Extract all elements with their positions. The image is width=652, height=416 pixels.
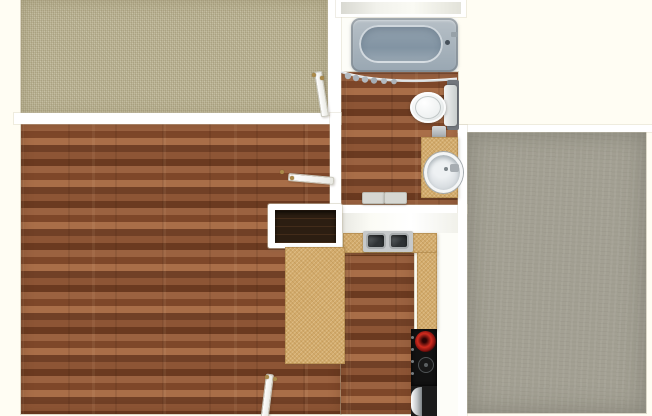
room-bedroom-left-carpet [21, 0, 328, 115]
room-kitchen-floor [341, 252, 414, 414]
toilet-seat-ring [415, 96, 441, 119]
door-hinge-icon [320, 76, 324, 80]
vanity-faucet-handle [444, 167, 448, 171]
kitchen-sink-basin-left [366, 233, 386, 249]
shower-curtain [338, 64, 460, 88]
room-bedroom-right-carpet [467, 132, 646, 413]
bath-mat-right [384, 192, 407, 204]
bathtub-basin [359, 25, 443, 63]
range-knob-3 [411, 360, 414, 363]
entry-hall-floor [341, 213, 458, 233]
door-hinge-icon [280, 170, 284, 174]
door-hinge-icon [273, 377, 277, 381]
wall-bedroom-bathroom [328, 0, 341, 115]
range-knob-2 [411, 348, 414, 351]
bathtub-faucet-icon [451, 32, 458, 37]
range-knob-1 [411, 336, 414, 339]
toilet-bowl [410, 92, 446, 123]
kitchen-counter-right [417, 252, 437, 330]
oven-handle-icon [411, 387, 422, 416]
wall-bedroom-living [14, 113, 341, 124]
kitchen-sink-basin-right [389, 233, 409, 249]
closet-shelf [341, 2, 461, 14]
vanity-faucet-icon [450, 164, 459, 172]
wall-kitchen-right [437, 213, 458, 416]
peninsula-counter [285, 247, 345, 364]
wall-living-bathroom [330, 113, 341, 209]
bathtub-drain [445, 40, 450, 45]
range-cooktop [411, 329, 437, 386]
vanity-sink [424, 152, 463, 193]
wall-bathroom-bottom [331, 205, 467, 213]
door-hinge-icon [312, 73, 316, 77]
range-knob-4 [411, 372, 414, 375]
floor-plan [0, 0, 652, 416]
burner-hot-icon [415, 331, 436, 352]
door-hinge-icon [265, 375, 269, 379]
breakfast-bar-top [275, 210, 336, 243]
wall-bedroom-right-top [458, 125, 652, 132]
kitchen-sink-frame [363, 231, 413, 252]
door-knob-icon [290, 176, 294, 180]
bath-mat-left [362, 192, 385, 204]
burner-off-center [424, 363, 428, 367]
